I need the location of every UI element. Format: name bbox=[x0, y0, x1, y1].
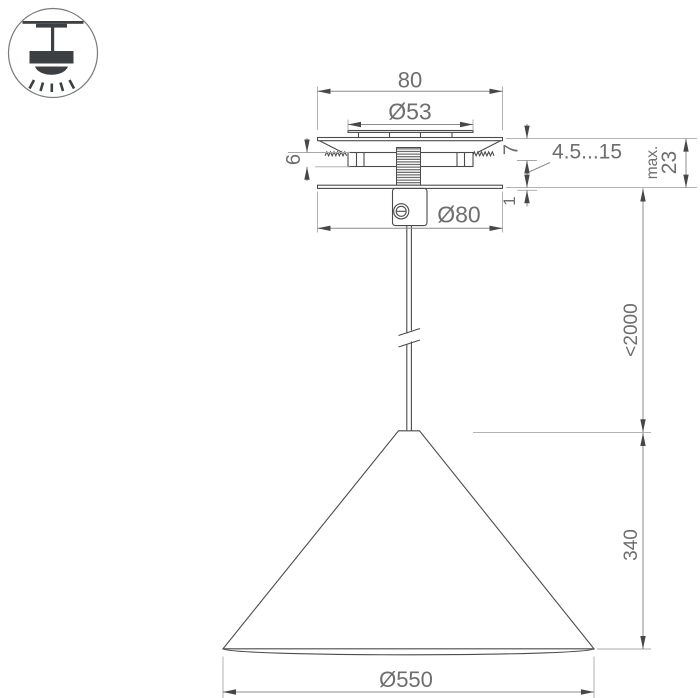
inner-plate bbox=[348, 131, 473, 133]
dim-spring-clip-height: 6 bbox=[283, 138, 350, 181]
dim-right-stack: 7 4.5...15 1 max. 23 bbox=[500, 124, 697, 207]
dim-shade-diameter: Ø550 bbox=[223, 657, 594, 698]
dim-hole-diameter: Ø53 bbox=[348, 99, 473, 131]
dim-label-2000: <2000 bbox=[621, 303, 642, 356]
dim-cable-length: <2000 bbox=[621, 189, 646, 433]
cone-shade bbox=[223, 431, 594, 655]
cable-gland-box bbox=[393, 188, 428, 225]
break-mark bbox=[399, 329, 421, 336]
technical-drawing-page: 80 Ø53 6 7 4.5...15 bbox=[0, 0, 700, 698]
dim-label-23: 23 bbox=[658, 151, 681, 174]
dim-label-6: 6 bbox=[283, 154, 305, 165]
pendant-ceiling-light-icon bbox=[9, 9, 98, 98]
spring-clip-right bbox=[473, 152, 495, 156]
break-mark bbox=[399, 340, 421, 347]
dim-label-7: 7 bbox=[501, 144, 523, 155]
dim-label-80: 80 bbox=[398, 68, 422, 93]
shade-rim bbox=[223, 649, 594, 655]
dim-label-d53: Ø53 bbox=[388, 99, 431, 125]
threaded-rod bbox=[397, 148, 421, 189]
suspension-cable bbox=[399, 226, 421, 431]
dim-label-d80: Ø80 bbox=[437, 202, 480, 228]
flange-plate bbox=[318, 138, 503, 141]
dim-label-340: 340 bbox=[621, 529, 642, 561]
dim-label-range: 4.5...15 bbox=[552, 141, 622, 164]
dim-label-d550: Ø550 bbox=[379, 667, 433, 692]
